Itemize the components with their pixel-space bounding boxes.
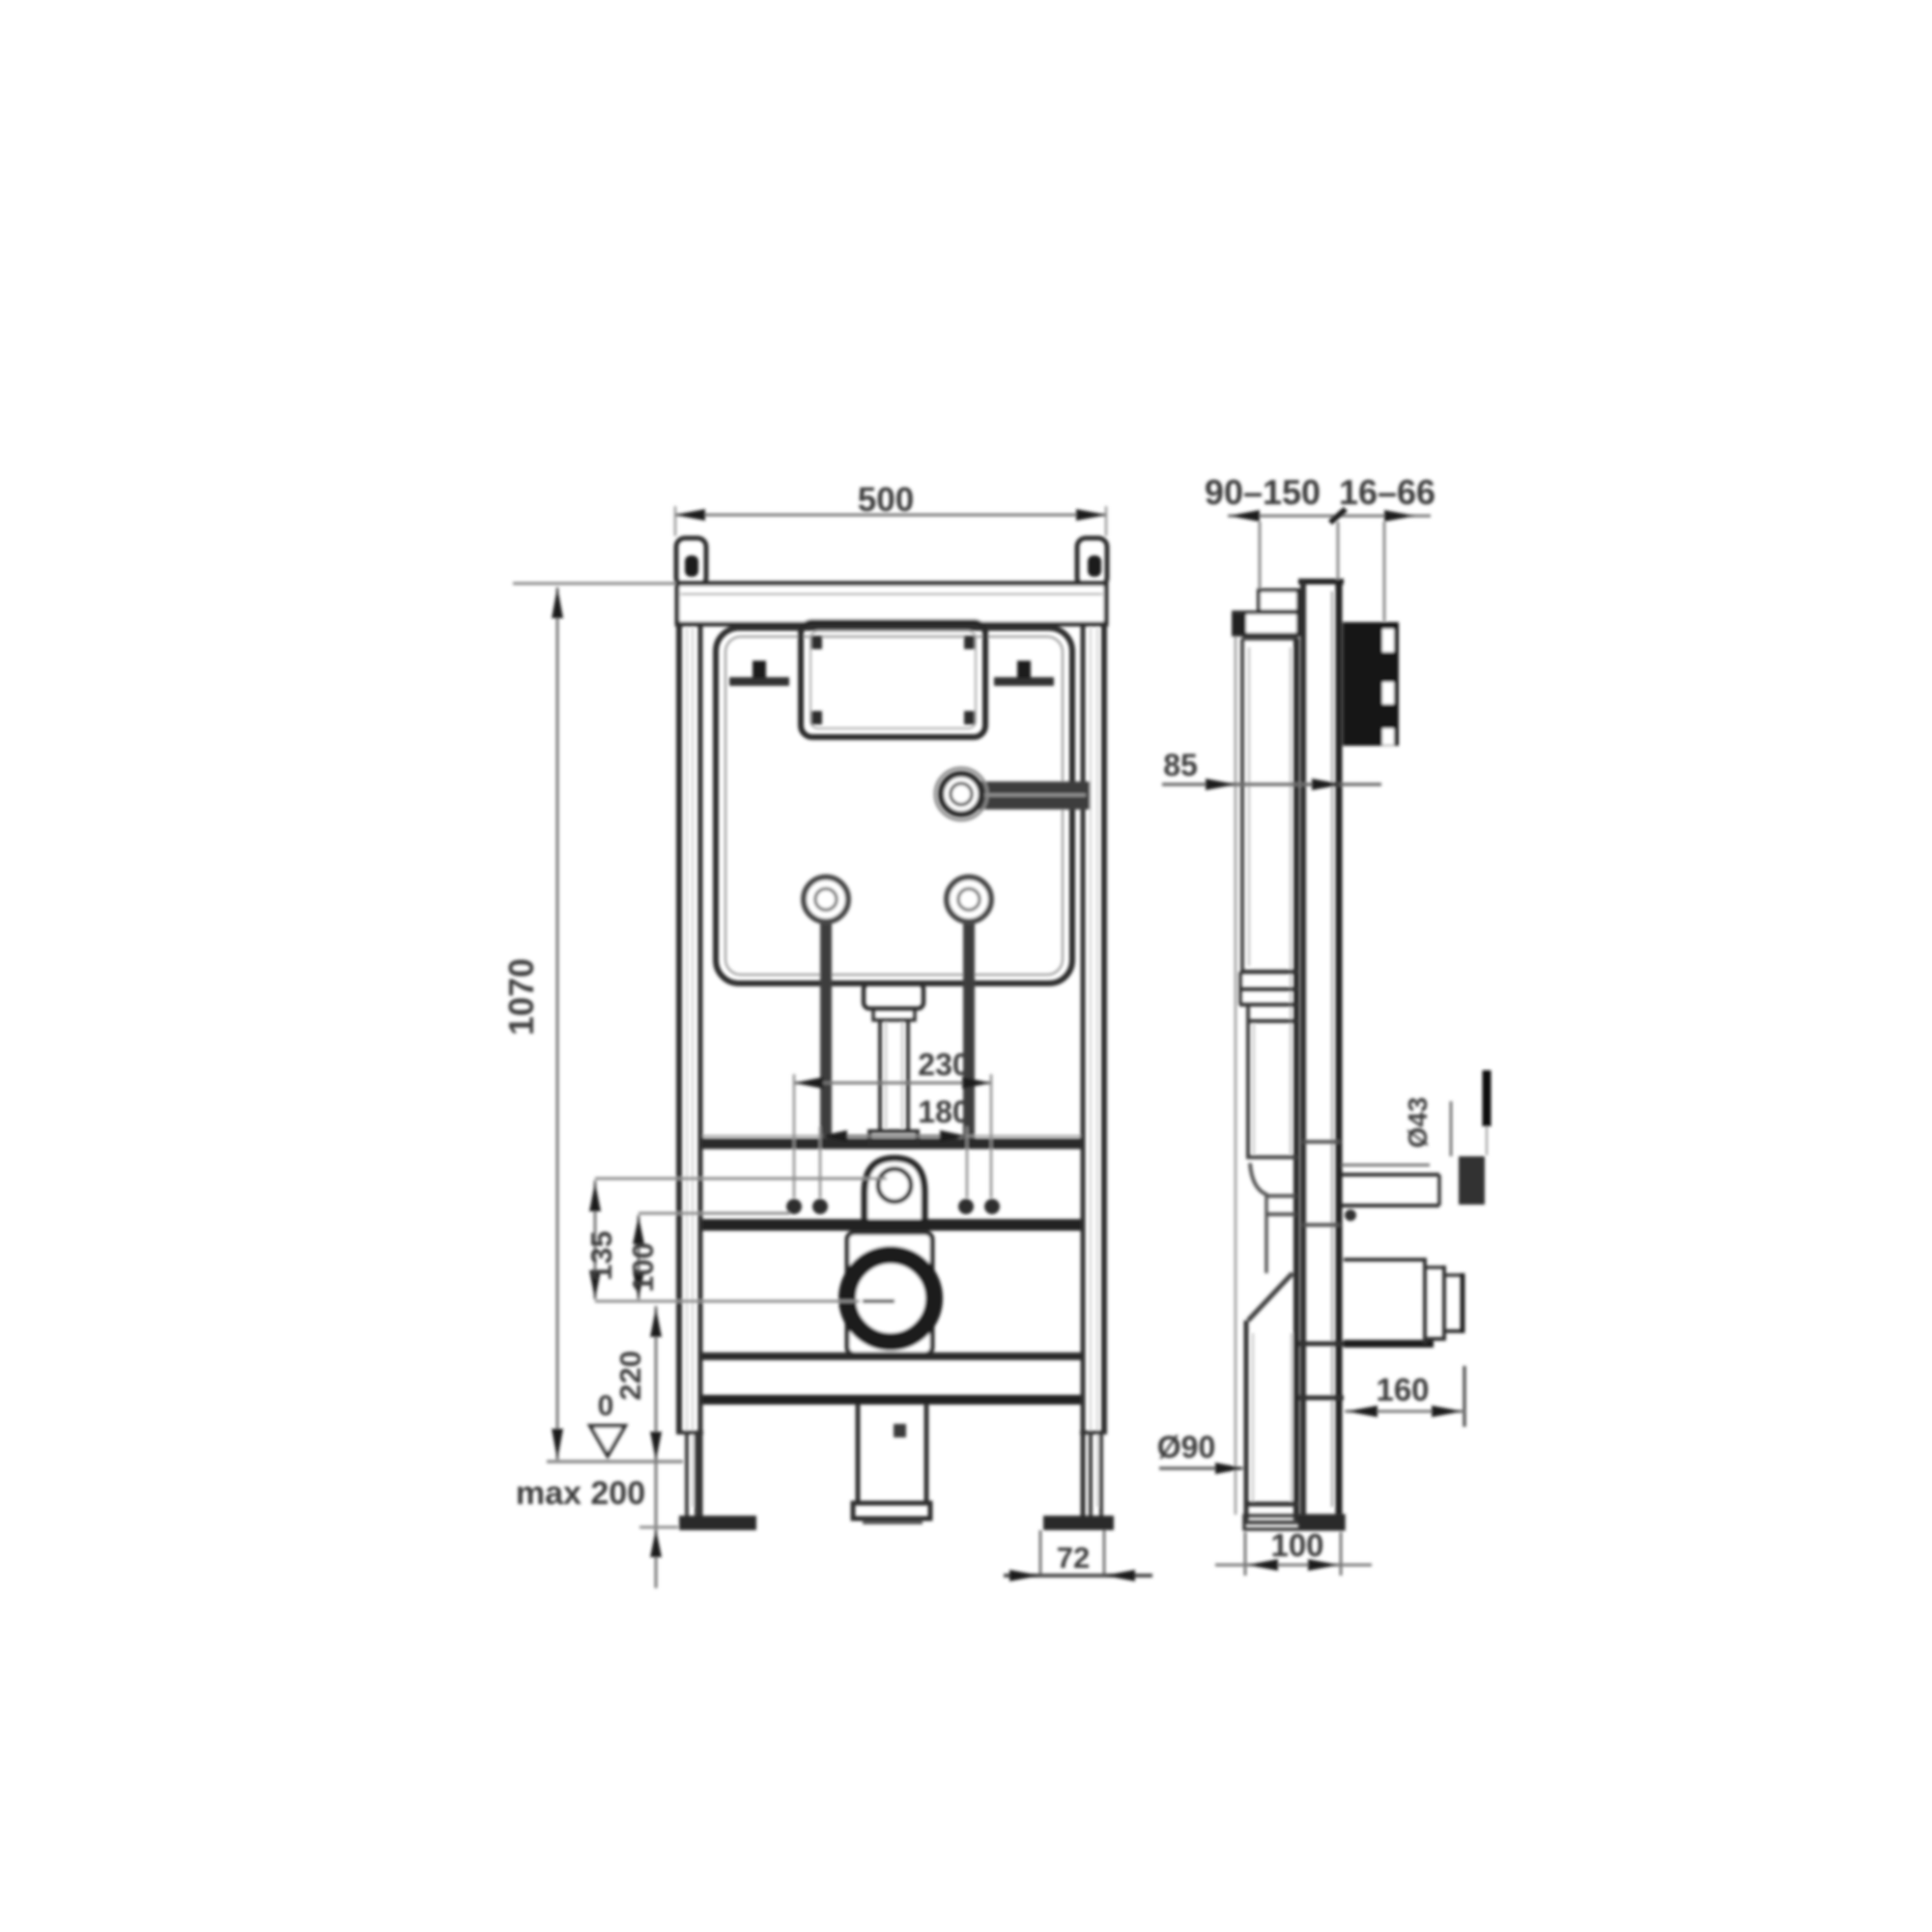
svg-text:85: 85 <box>1163 748 1198 782</box>
svg-text:100: 100 <box>626 1242 660 1293</box>
svg-text:160: 160 <box>1376 1372 1429 1407</box>
svg-text:90–150: 90–150 <box>1205 472 1321 512</box>
svg-text:220: 220 <box>613 1350 647 1401</box>
svg-text:230: 230 <box>918 1047 969 1082</box>
svg-text:0: 0 <box>598 1390 614 1422</box>
svg-text:Ø43: Ø43 <box>1403 1097 1433 1149</box>
svg-text:180: 180 <box>918 1094 969 1129</box>
svg-text:1070: 1070 <box>501 958 541 1036</box>
svg-text:16–66: 16–66 <box>1339 472 1435 512</box>
svg-text:72: 72 <box>1057 1541 1090 1575</box>
svg-text:100: 100 <box>1270 1527 1323 1563</box>
svg-text:Ø90: Ø90 <box>1157 1430 1215 1464</box>
svg-text:135: 135 <box>584 1231 618 1281</box>
svg-text:max 200: max 200 <box>516 1475 645 1512</box>
svg-text:500: 500 <box>858 481 914 519</box>
